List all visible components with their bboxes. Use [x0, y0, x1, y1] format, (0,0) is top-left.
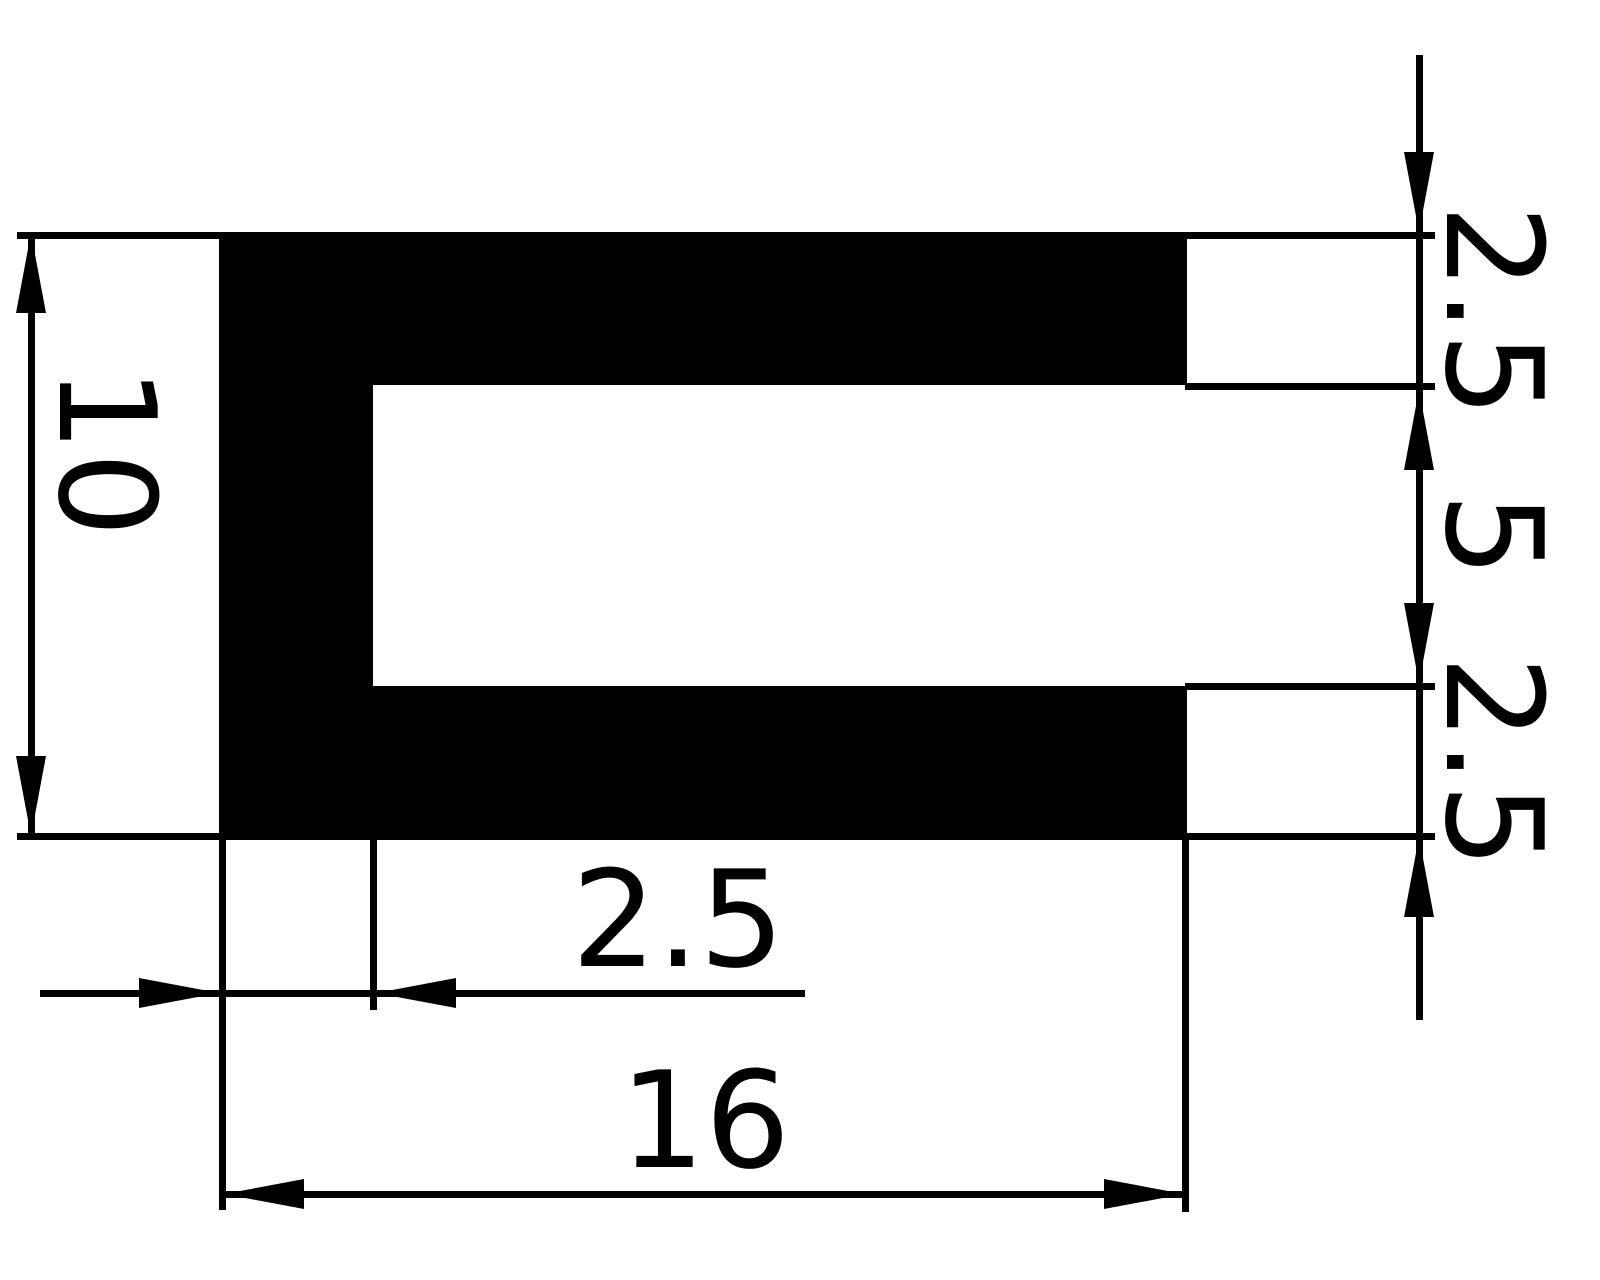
extension-line-left-wall-outer	[219, 838, 226, 1210]
dim-label-height-total: 10	[39, 367, 173, 538]
u-profile-slot	[373, 385, 1187, 686]
dim-arrow-left-width	[224, 1179, 304, 1209]
extension-line-right-edge	[1182, 836, 1189, 1212]
dim-label-left-wall: 2.5	[571, 853, 784, 987]
dim-arrow-right-left-wall	[139, 978, 219, 1008]
dim-label-width-total: 16	[620, 1054, 791, 1188]
extension-line-bottom-edge	[17, 833, 1435, 840]
extension-line-top-edge	[17, 232, 1435, 239]
dim-arrow-right-width	[1104, 1179, 1184, 1209]
dim-arrow-left-left-wall	[376, 978, 456, 1008]
dim-label-bottom-wall: 2.5	[1426, 655, 1560, 868]
extension-line-slot-bottom	[1185, 683, 1435, 690]
technical-drawing-canvas: 10 2.5 5 2.5 2.5 16	[0, 0, 1600, 1280]
dim-arrow-down-height-bottom	[16, 756, 46, 836]
dim-label-slot-height: 5	[1426, 492, 1560, 577]
dim-label-top-wall: 2.5	[1426, 204, 1560, 417]
extension-line-slot-top	[1185, 383, 1435, 390]
dim-arrow-up-height-top	[16, 233, 46, 313]
